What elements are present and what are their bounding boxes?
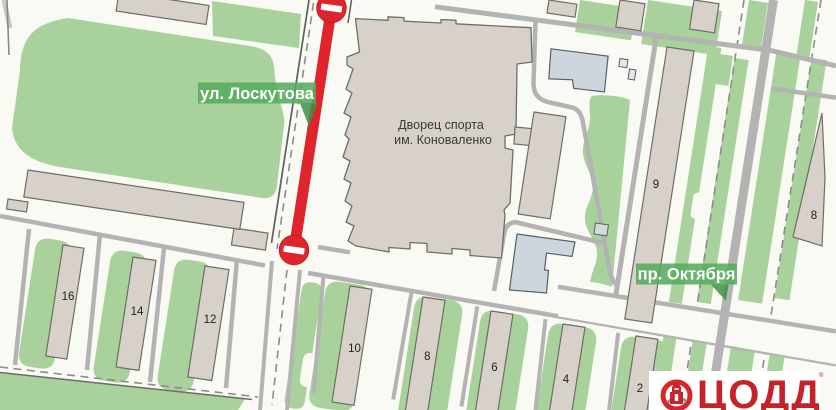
svg-text:8: 8 (424, 351, 430, 363)
svg-text:Дворец спорта: Дворец спорта (398, 118, 484, 132)
svg-text:14: 14 (131, 306, 144, 318)
svg-text:4: 4 (563, 374, 570, 386)
svg-text:6: 6 (491, 362, 497, 374)
svg-text:ул. Лоскутова: ул. Лоскутова (200, 85, 315, 103)
svg-text:пр. Октября: пр. Октября (638, 266, 736, 284)
svg-text:12: 12 (204, 314, 217, 326)
svg-text:2: 2 (637, 383, 643, 395)
svg-text:16: 16 (62, 291, 75, 303)
svg-text:8: 8 (811, 210, 817, 222)
svg-text:им. Коноваленко: им. Коноваленко (394, 133, 492, 147)
svg-text:ЦОДД: ЦОДД (697, 373, 822, 410)
svg-text:9: 9 (653, 179, 659, 191)
svg-text:®: ® (819, 371, 824, 379)
svg-text:10: 10 (348, 343, 361, 355)
